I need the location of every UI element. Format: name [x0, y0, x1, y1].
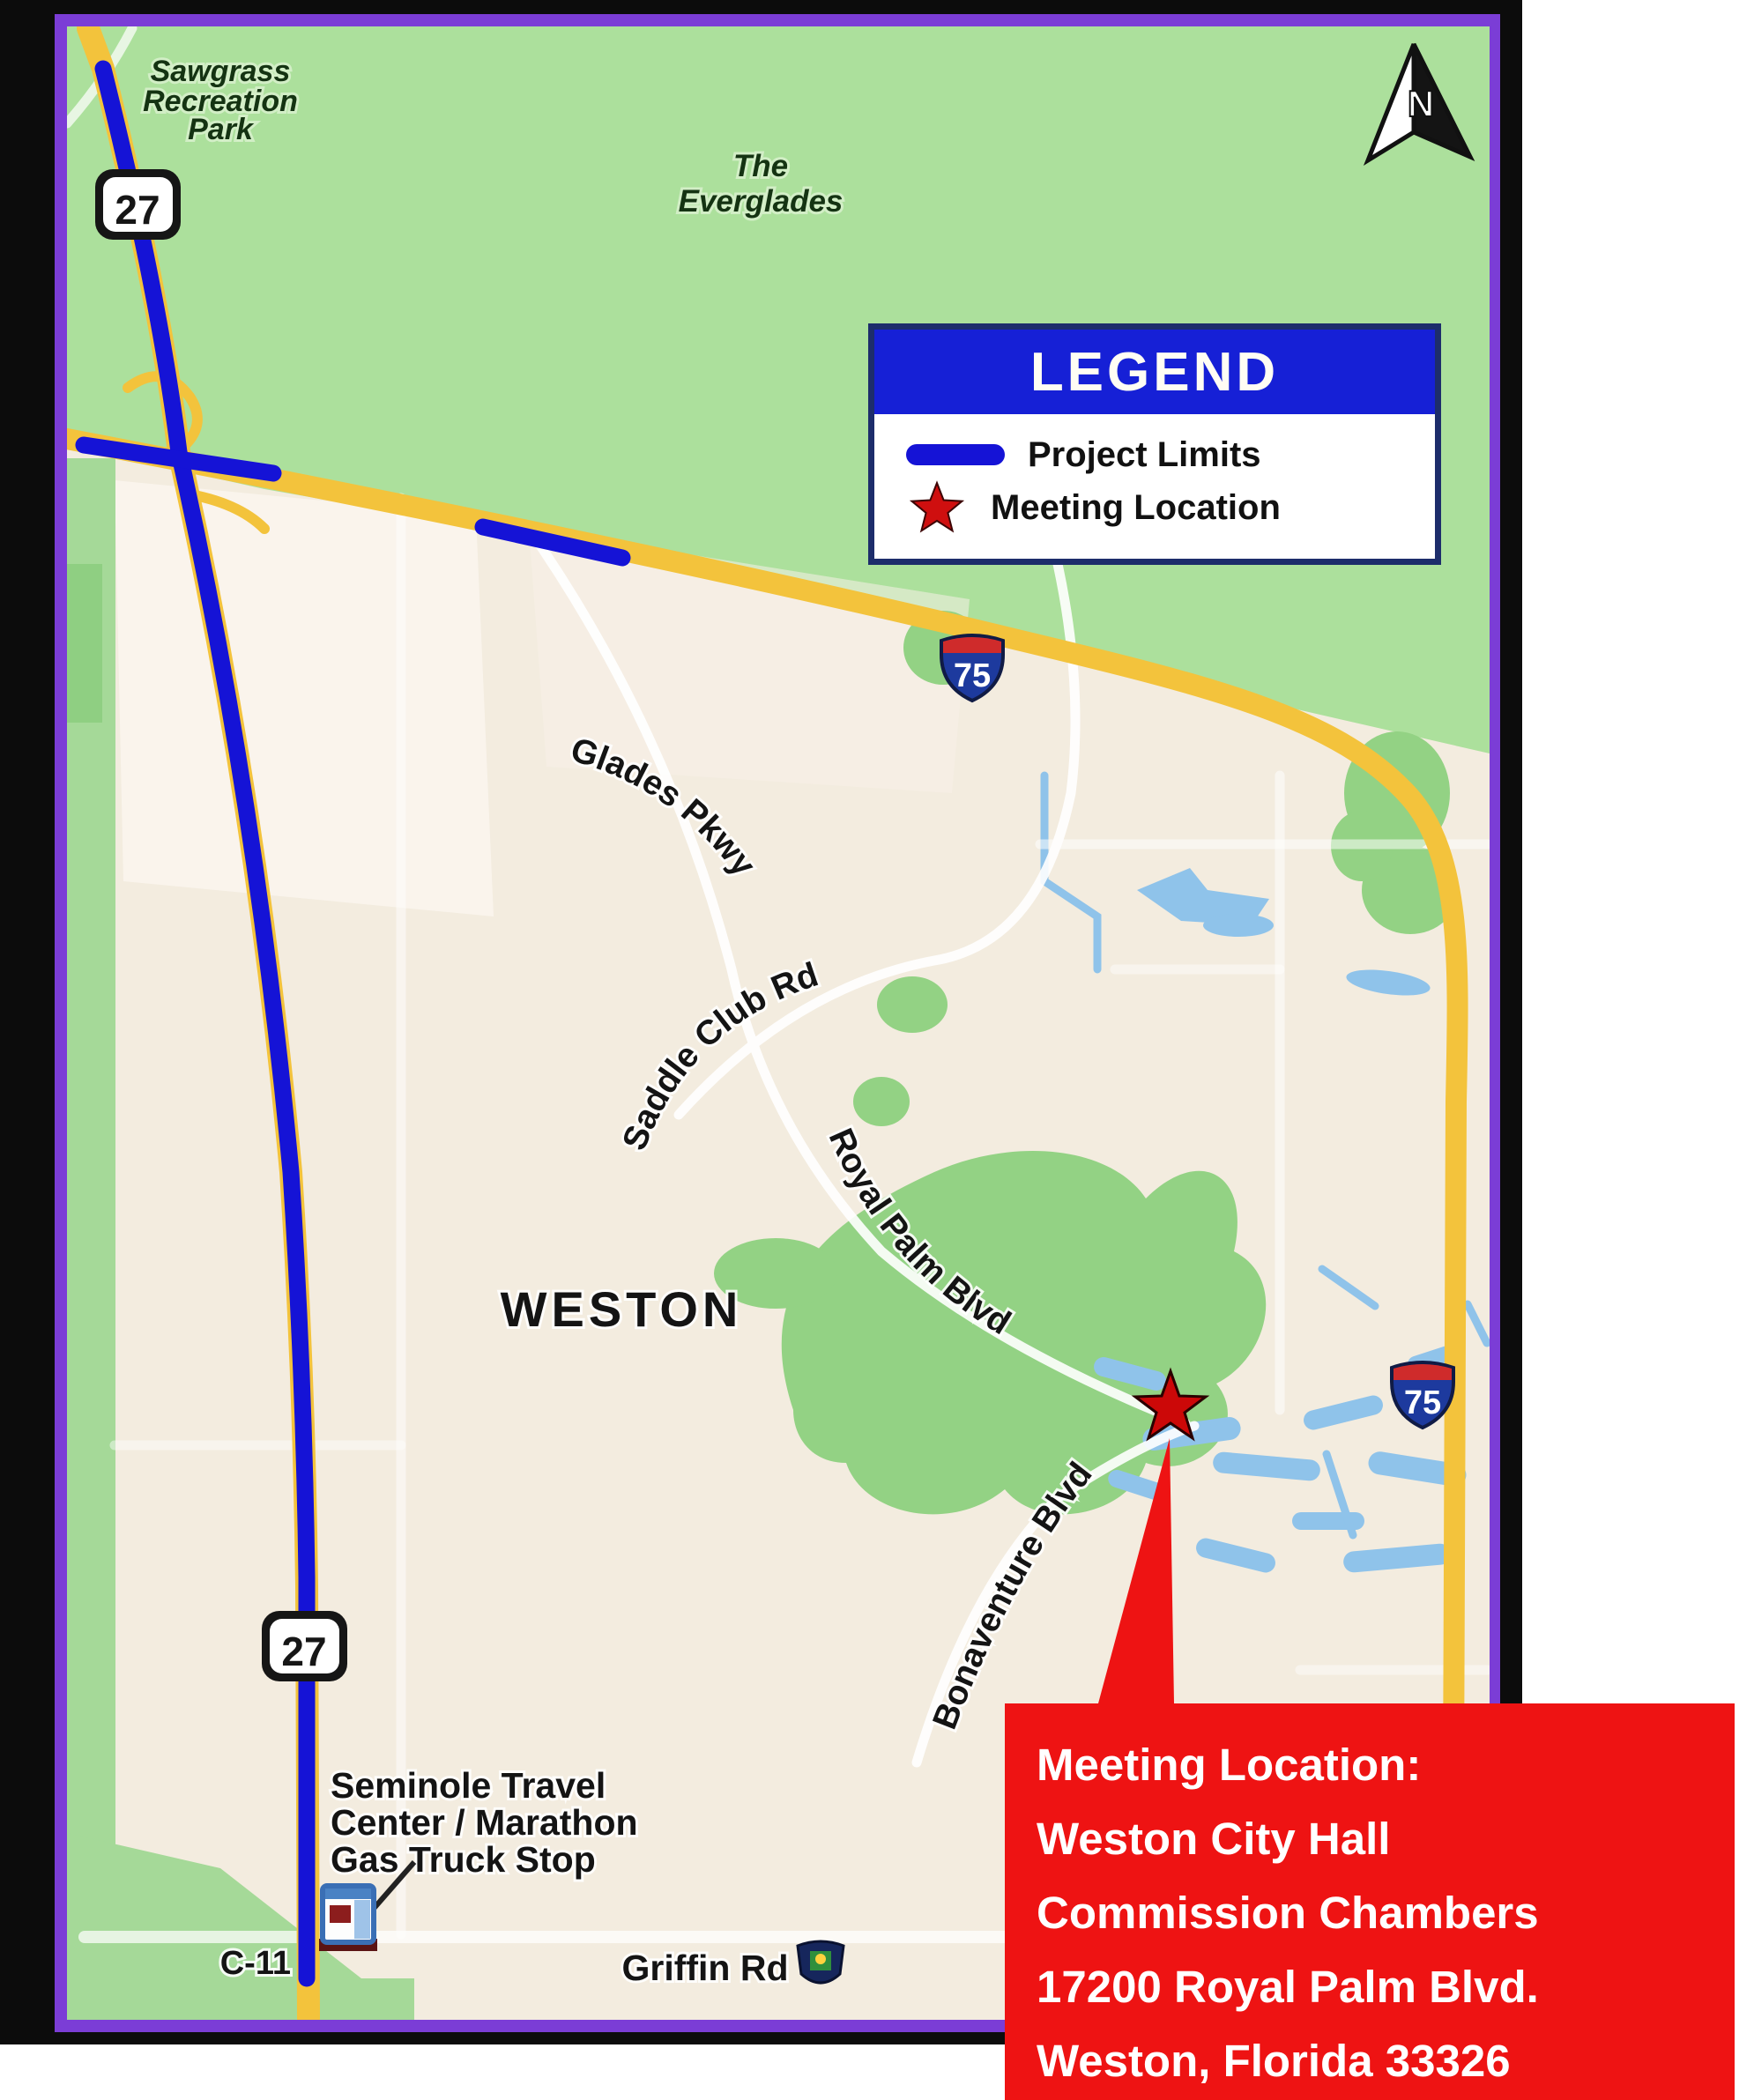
- meeting-location-callout: Meeting Location: Weston City Hall Commi…: [1005, 1703, 1735, 2100]
- us27-shield-number: 27: [115, 187, 160, 233]
- seminole-label-line3: Gas Truck Stop: [331, 1839, 596, 1880]
- meeting-line: Meeting Location:: [1037, 1728, 1735, 1802]
- city-label-weston: WESTON: [501, 1281, 743, 1337]
- us27-shield: 27: [262, 1611, 347, 1681]
- everglades-label-line1: The: [733, 149, 788, 183]
- legend-item-meeting-location: Meeting Location: [906, 481, 1435, 534]
- turnpike-shield-icon: [798, 1941, 844, 1983]
- meeting-line: 17200 Royal Palm Blvd.: [1037, 1950, 1735, 2024]
- project-limits-swatch: [906, 444, 1005, 465]
- meeting-line: Weston City Hall: [1037, 1802, 1735, 1876]
- legend-star-icon: [906, 480, 968, 535]
- us27-shield: 27: [95, 169, 181, 240]
- flyer-page: Sawgrass Recreation Park The Everglades …: [0, 0, 1754, 2100]
- seminole-label-line2: Center / Marathon: [331, 1802, 638, 1843]
- meeting-line: Weston, Florida 33326: [1037, 2024, 1735, 2098]
- legend: LEGEND Project Limits Meeting Location: [868, 323, 1441, 565]
- c11-label: C-11: [220, 1945, 291, 1982]
- legend-item-label: Project Limits: [1028, 435, 1261, 475]
- legend-item-project-limits: Project Limits: [906, 428, 1435, 481]
- i75-shield-number: 75: [954, 657, 991, 694]
- meeting-line: Commission Chambers: [1037, 1876, 1735, 1950]
- gas-pump-icon: [319, 1886, 377, 1951]
- park-label-line3: Park: [188, 113, 255, 146]
- us27-shield-number: 27: [281, 1629, 326, 1674]
- park-label-line1: Sawgrass: [151, 55, 291, 88]
- legend-item-label: Meeting Location: [991, 488, 1281, 528]
- legend-title: LEGEND: [874, 330, 1435, 414]
- griffin-rd-label: Griffin Rd: [621, 1948, 788, 1988]
- i75-shield-number: 75: [1404, 1384, 1441, 1421]
- north-arrow-letter: N: [1408, 83, 1434, 124]
- seminole-label-line1: Seminole Travel: [331, 1765, 606, 1806]
- everglades-label-line2: Everglades: [679, 184, 844, 219]
